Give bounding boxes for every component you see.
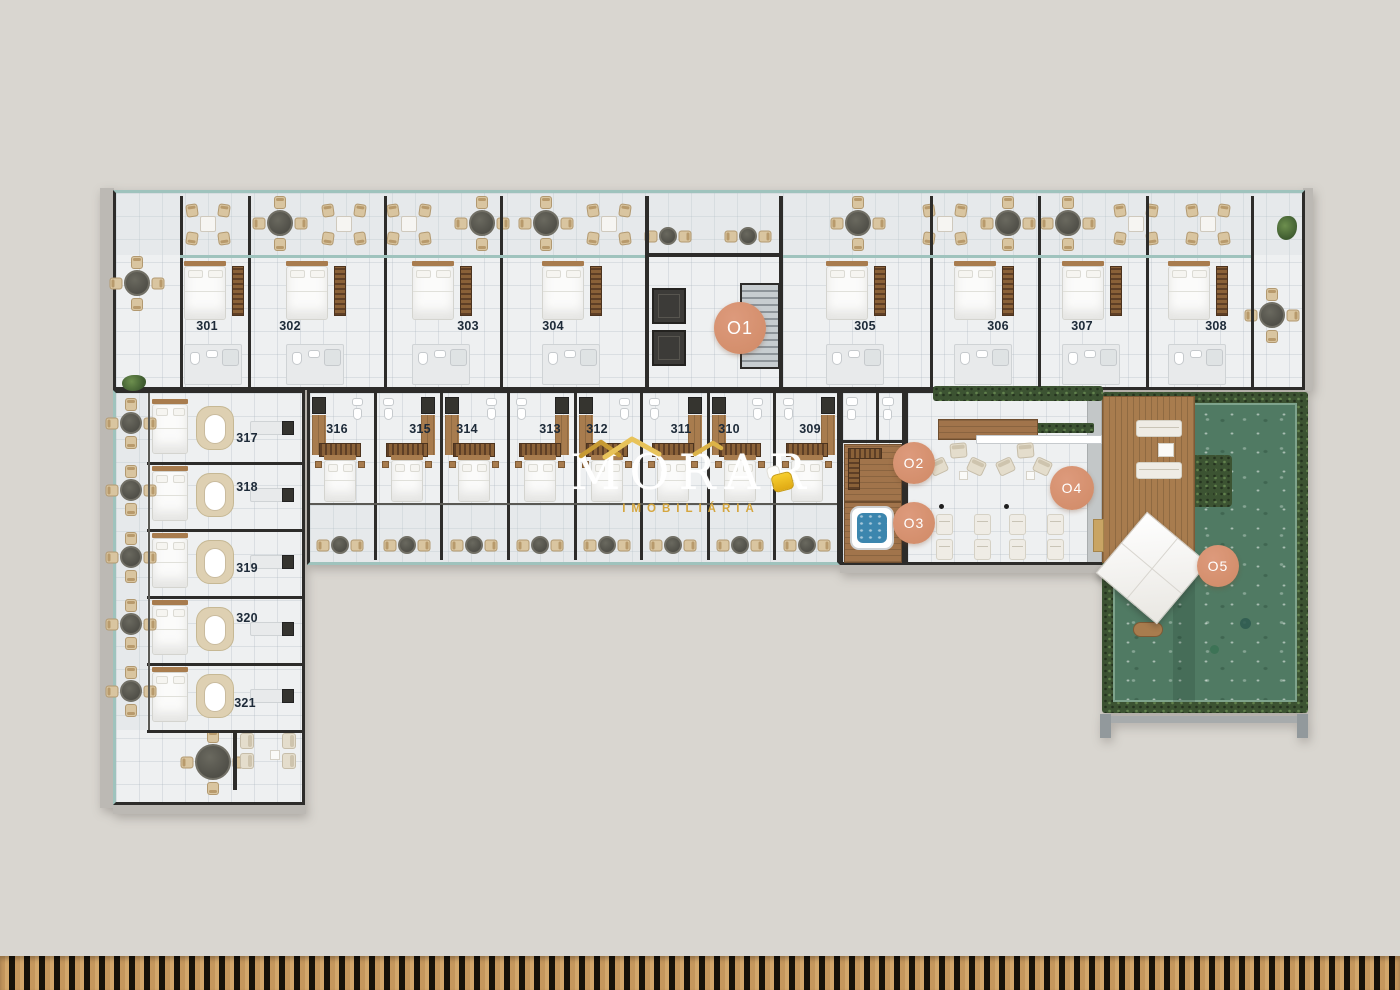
chair xyxy=(282,753,296,769)
toilet xyxy=(1174,352,1184,365)
bed-pillow xyxy=(310,270,325,278)
chair xyxy=(1185,231,1199,246)
sink xyxy=(383,398,394,406)
table-round xyxy=(739,227,757,245)
chair xyxy=(240,753,254,769)
bed-duvet xyxy=(153,495,187,496)
chair xyxy=(181,756,194,768)
bed-pillow xyxy=(566,270,581,278)
bed-headboard xyxy=(286,261,328,266)
chair xyxy=(144,484,157,496)
chair xyxy=(144,618,157,630)
bed xyxy=(286,266,328,320)
chair xyxy=(1185,203,1199,218)
toilet xyxy=(190,352,200,365)
kitchen-counter xyxy=(421,397,435,414)
chair xyxy=(561,217,574,229)
chair xyxy=(717,539,730,551)
bed-headboard xyxy=(954,261,996,266)
wall xyxy=(147,462,305,465)
bed-pillow xyxy=(436,270,451,278)
bed xyxy=(826,266,868,320)
wall xyxy=(1251,196,1254,387)
side-table xyxy=(270,750,280,760)
house-roof-icon xyxy=(575,434,735,460)
bed-headboard xyxy=(152,600,188,605)
chair xyxy=(106,551,119,563)
toilet xyxy=(517,408,526,420)
table-round xyxy=(995,210,1021,236)
chair xyxy=(1016,442,1034,458)
bed-headboard xyxy=(324,455,356,460)
bed-duvet xyxy=(1169,291,1209,292)
chair xyxy=(274,196,286,209)
unit-label-308: 308 xyxy=(1205,319,1226,333)
appliance xyxy=(282,488,294,502)
unit-label-301: 301 xyxy=(196,319,217,333)
sink xyxy=(308,350,320,358)
chair xyxy=(497,217,510,229)
chair xyxy=(759,230,772,242)
wall xyxy=(374,393,377,560)
table-round xyxy=(120,479,142,501)
chair xyxy=(818,539,831,551)
unit-label-302: 302 xyxy=(279,319,300,333)
table-square xyxy=(336,216,352,232)
nightstand xyxy=(825,461,832,468)
sunbed xyxy=(974,514,991,535)
garden-pond-stone xyxy=(1240,618,1251,629)
kitchen-counter xyxy=(445,397,459,414)
chair xyxy=(954,231,968,246)
wall xyxy=(147,529,305,532)
bed-pillow xyxy=(978,270,993,278)
chair xyxy=(125,398,137,411)
unit-label-306: 306 xyxy=(987,319,1008,333)
bed-pillow xyxy=(1192,270,1207,278)
chair xyxy=(418,539,431,551)
area-marker-o2: O2 xyxy=(893,442,935,484)
unit-label-321: 321 xyxy=(234,696,255,710)
bed-duvet xyxy=(459,480,489,481)
bathtub xyxy=(204,682,226,712)
toilet xyxy=(487,408,496,420)
chair xyxy=(353,231,367,246)
bed-duvet xyxy=(153,562,187,563)
table-round xyxy=(731,536,749,554)
chair xyxy=(125,570,137,583)
bed-pillow xyxy=(208,270,223,278)
sink xyxy=(434,350,446,358)
table-round xyxy=(465,536,483,554)
chair xyxy=(125,666,137,679)
chair xyxy=(125,503,137,516)
chair xyxy=(1041,217,1054,229)
chair xyxy=(1287,309,1300,321)
bed-headboard xyxy=(184,261,226,266)
table-round xyxy=(124,270,150,296)
table-round xyxy=(1259,302,1285,328)
toilet xyxy=(548,352,558,365)
bed-headboard xyxy=(458,455,490,460)
bed-pillow xyxy=(477,464,487,472)
table-round xyxy=(598,536,616,554)
chair xyxy=(1023,217,1036,229)
toilet xyxy=(1068,352,1078,365)
wood-slat-strip xyxy=(0,956,1400,990)
chair xyxy=(922,203,936,218)
table-round xyxy=(659,227,677,245)
bed-headboard xyxy=(152,466,188,471)
kitchen-counter xyxy=(579,397,593,414)
chair xyxy=(1217,231,1231,246)
table-square xyxy=(601,216,617,232)
chair xyxy=(386,203,400,218)
bed-headboard xyxy=(826,261,868,266)
side-table xyxy=(1026,471,1035,480)
wall xyxy=(147,663,305,666)
bed-pillow xyxy=(173,475,185,483)
chair xyxy=(317,539,330,551)
chair xyxy=(551,539,564,551)
nightstand xyxy=(315,461,322,468)
chair xyxy=(1083,217,1096,229)
garden-wall-post xyxy=(1100,714,1111,738)
chair xyxy=(217,203,231,218)
bed-headboard xyxy=(542,261,584,266)
bed xyxy=(391,460,423,502)
nightstand xyxy=(358,461,365,468)
parasol-fold xyxy=(1121,543,1181,594)
deck-lounger xyxy=(1136,462,1182,479)
wall xyxy=(500,196,503,387)
wardrobe xyxy=(334,266,346,316)
chair xyxy=(386,231,400,246)
unit-label-307: 307 xyxy=(1071,319,1092,333)
sink xyxy=(882,397,894,406)
table-round xyxy=(267,210,293,236)
table-round xyxy=(120,613,142,635)
chair xyxy=(618,231,632,246)
glass-rail xyxy=(148,393,150,730)
bed-pillow xyxy=(173,609,185,617)
floor-lamp xyxy=(1004,504,1009,509)
chair xyxy=(321,231,335,246)
bed-pillow xyxy=(156,542,168,550)
bed-duvet xyxy=(827,291,867,292)
sink xyxy=(752,398,763,406)
bed-headboard xyxy=(412,261,454,266)
table-round xyxy=(469,210,495,236)
toilet xyxy=(292,352,302,365)
chair xyxy=(831,217,844,229)
wardrobe xyxy=(232,266,244,316)
bed-duvet xyxy=(287,291,327,292)
wall xyxy=(779,196,783,387)
chair xyxy=(282,733,296,749)
bed-headboard xyxy=(1168,261,1210,266)
table-square xyxy=(1128,216,1144,232)
bed-duvet xyxy=(325,480,355,481)
wardrobe xyxy=(1002,266,1014,316)
bed-pillow xyxy=(1066,270,1081,278)
bench xyxy=(1093,519,1104,552)
chair xyxy=(1266,288,1278,301)
table-round xyxy=(531,536,549,554)
chair xyxy=(131,298,143,311)
shower xyxy=(324,349,341,366)
area-marker-o3: O3 xyxy=(893,502,935,544)
garden-wall-post xyxy=(1297,714,1308,738)
chair xyxy=(618,203,632,218)
bed-pillow xyxy=(173,408,185,416)
bed-pillow xyxy=(462,464,472,472)
sunbed xyxy=(936,514,953,535)
bed xyxy=(152,471,188,521)
sunbed xyxy=(1047,514,1064,535)
bed-headboard xyxy=(152,667,188,672)
unit-label-305: 305 xyxy=(854,319,875,333)
bed-duvet xyxy=(185,291,225,292)
chair xyxy=(125,637,137,650)
wardrobe xyxy=(1216,266,1228,316)
chair xyxy=(351,539,364,551)
chair xyxy=(274,238,286,251)
unit-label-316: 316 xyxy=(326,422,347,436)
wall xyxy=(384,196,387,387)
chair xyxy=(650,539,663,551)
bed-pillow xyxy=(156,408,168,416)
table-round xyxy=(798,536,816,554)
nightstand xyxy=(515,461,522,468)
sink xyxy=(516,398,527,406)
chair xyxy=(125,532,137,545)
toilet xyxy=(753,408,762,420)
chair xyxy=(540,196,552,209)
shower xyxy=(1100,349,1117,366)
bed-pillow xyxy=(395,464,405,472)
appliance xyxy=(282,421,294,435)
chair xyxy=(353,203,367,218)
toilet xyxy=(784,408,793,420)
jacuzzi-water xyxy=(857,513,887,543)
chair xyxy=(144,417,157,429)
nightstand xyxy=(492,461,499,468)
bed-pillow xyxy=(528,464,538,472)
table-round xyxy=(120,412,142,434)
toilet xyxy=(353,408,362,420)
chair xyxy=(1062,196,1074,209)
chair xyxy=(185,231,199,246)
bed-pillow xyxy=(410,464,420,472)
chair xyxy=(185,203,199,218)
chair xyxy=(954,203,968,218)
sink xyxy=(848,350,860,358)
wall xyxy=(180,196,183,387)
bathtub xyxy=(204,548,226,578)
bed xyxy=(1062,266,1104,320)
chair xyxy=(451,539,464,551)
bed xyxy=(152,605,188,655)
chair xyxy=(144,551,157,563)
chair xyxy=(125,465,137,478)
chair xyxy=(519,217,532,229)
bed-duvet xyxy=(153,696,187,697)
wall xyxy=(930,196,933,387)
bed-pillow xyxy=(290,270,305,278)
chair xyxy=(418,203,432,218)
wall xyxy=(1038,196,1041,387)
toilet xyxy=(883,409,892,420)
bed xyxy=(1168,266,1210,320)
wardrobe xyxy=(460,266,472,316)
toilet xyxy=(960,352,970,365)
toilet xyxy=(832,352,842,365)
bed-headboard xyxy=(1062,261,1104,266)
chair xyxy=(253,217,266,229)
sink xyxy=(976,350,988,358)
toilet xyxy=(650,408,659,420)
bed xyxy=(412,266,454,320)
bed-headboard xyxy=(524,455,556,460)
chair xyxy=(540,238,552,251)
area-marker-o1: O1 xyxy=(714,302,766,354)
kitchen-counter xyxy=(821,397,835,414)
chair xyxy=(476,196,488,209)
chair xyxy=(873,217,886,229)
sink xyxy=(619,398,630,406)
chair xyxy=(125,599,137,612)
table-round xyxy=(1055,210,1081,236)
chair xyxy=(144,685,157,697)
area-marker-o5: O5 xyxy=(1197,545,1239,587)
shower xyxy=(222,349,239,366)
chair xyxy=(922,231,936,246)
kitchen-counter xyxy=(312,397,326,414)
chair xyxy=(586,203,600,218)
chair xyxy=(517,539,530,551)
bed xyxy=(152,672,188,722)
chair xyxy=(321,203,335,218)
sink xyxy=(564,350,576,358)
sunbed xyxy=(1009,539,1026,560)
bed-pillow xyxy=(416,270,431,278)
wall xyxy=(233,733,237,790)
toilet xyxy=(418,352,428,365)
chair xyxy=(852,238,864,251)
appliance xyxy=(282,689,294,703)
table-square xyxy=(200,216,216,232)
armchair-icon xyxy=(767,466,797,496)
nightstand xyxy=(425,461,432,468)
wall xyxy=(843,440,905,443)
chair xyxy=(784,539,797,551)
bed-pillow xyxy=(850,270,865,278)
chair xyxy=(476,238,488,251)
chair xyxy=(1002,196,1014,209)
chair xyxy=(618,539,631,551)
shower xyxy=(1206,349,1223,366)
bed xyxy=(152,404,188,454)
chair xyxy=(217,231,231,246)
kitchen-counter xyxy=(712,397,726,414)
bed-pillow xyxy=(156,609,168,617)
table-round xyxy=(664,536,682,554)
table-square xyxy=(1200,216,1216,232)
glass-rail xyxy=(180,255,645,258)
ledge-bottom-leftwing xyxy=(113,805,306,814)
chair xyxy=(949,442,967,458)
counter-ledge xyxy=(976,435,1102,444)
bed-pillow xyxy=(343,464,353,472)
garden-stool xyxy=(1133,622,1163,637)
bed xyxy=(152,538,188,588)
sink xyxy=(486,398,497,406)
sink xyxy=(206,350,218,358)
chair xyxy=(125,436,137,449)
chair xyxy=(295,217,308,229)
wall xyxy=(507,393,510,560)
nightstand xyxy=(382,461,389,468)
bed xyxy=(458,460,490,502)
bathtub xyxy=(204,414,226,444)
elevator xyxy=(652,288,686,324)
sink xyxy=(1190,350,1202,358)
chair xyxy=(207,782,219,795)
sink xyxy=(783,398,794,406)
chair xyxy=(384,539,397,551)
wall xyxy=(248,196,251,387)
chair xyxy=(679,230,692,242)
chair xyxy=(1217,203,1231,218)
unit-label-317: 317 xyxy=(236,431,257,445)
shower xyxy=(992,349,1009,366)
wall xyxy=(645,253,783,257)
deck-side-table xyxy=(1158,443,1174,457)
bathtub xyxy=(204,615,226,645)
wardrobe xyxy=(1110,266,1122,316)
bed-duvet xyxy=(525,480,555,481)
bed-pillow xyxy=(543,464,553,472)
garden-pond-stone xyxy=(1210,645,1219,654)
table-round xyxy=(120,680,142,702)
chair xyxy=(110,277,123,289)
kitchen-counter xyxy=(688,397,702,414)
chair xyxy=(1113,203,1127,218)
wall xyxy=(440,393,443,560)
chair xyxy=(1266,330,1278,343)
bed-duvet xyxy=(1063,291,1103,292)
sunbed xyxy=(1009,514,1026,535)
bed xyxy=(324,460,356,502)
bed-pillow xyxy=(1086,270,1101,278)
wall xyxy=(645,196,649,387)
chair xyxy=(584,539,597,551)
bed xyxy=(954,266,996,320)
chair xyxy=(106,618,119,630)
ledge-bottom-lounge xyxy=(840,565,1103,573)
sauna-bench xyxy=(848,448,882,459)
table-square xyxy=(937,216,953,232)
sunbed xyxy=(974,539,991,560)
wall xyxy=(147,596,305,599)
bed-duvet xyxy=(153,629,187,630)
bed-duvet xyxy=(413,291,453,292)
chair xyxy=(106,417,119,429)
bed xyxy=(524,460,556,502)
bed-pillow xyxy=(188,270,203,278)
unit-label-314: 314 xyxy=(456,422,477,436)
